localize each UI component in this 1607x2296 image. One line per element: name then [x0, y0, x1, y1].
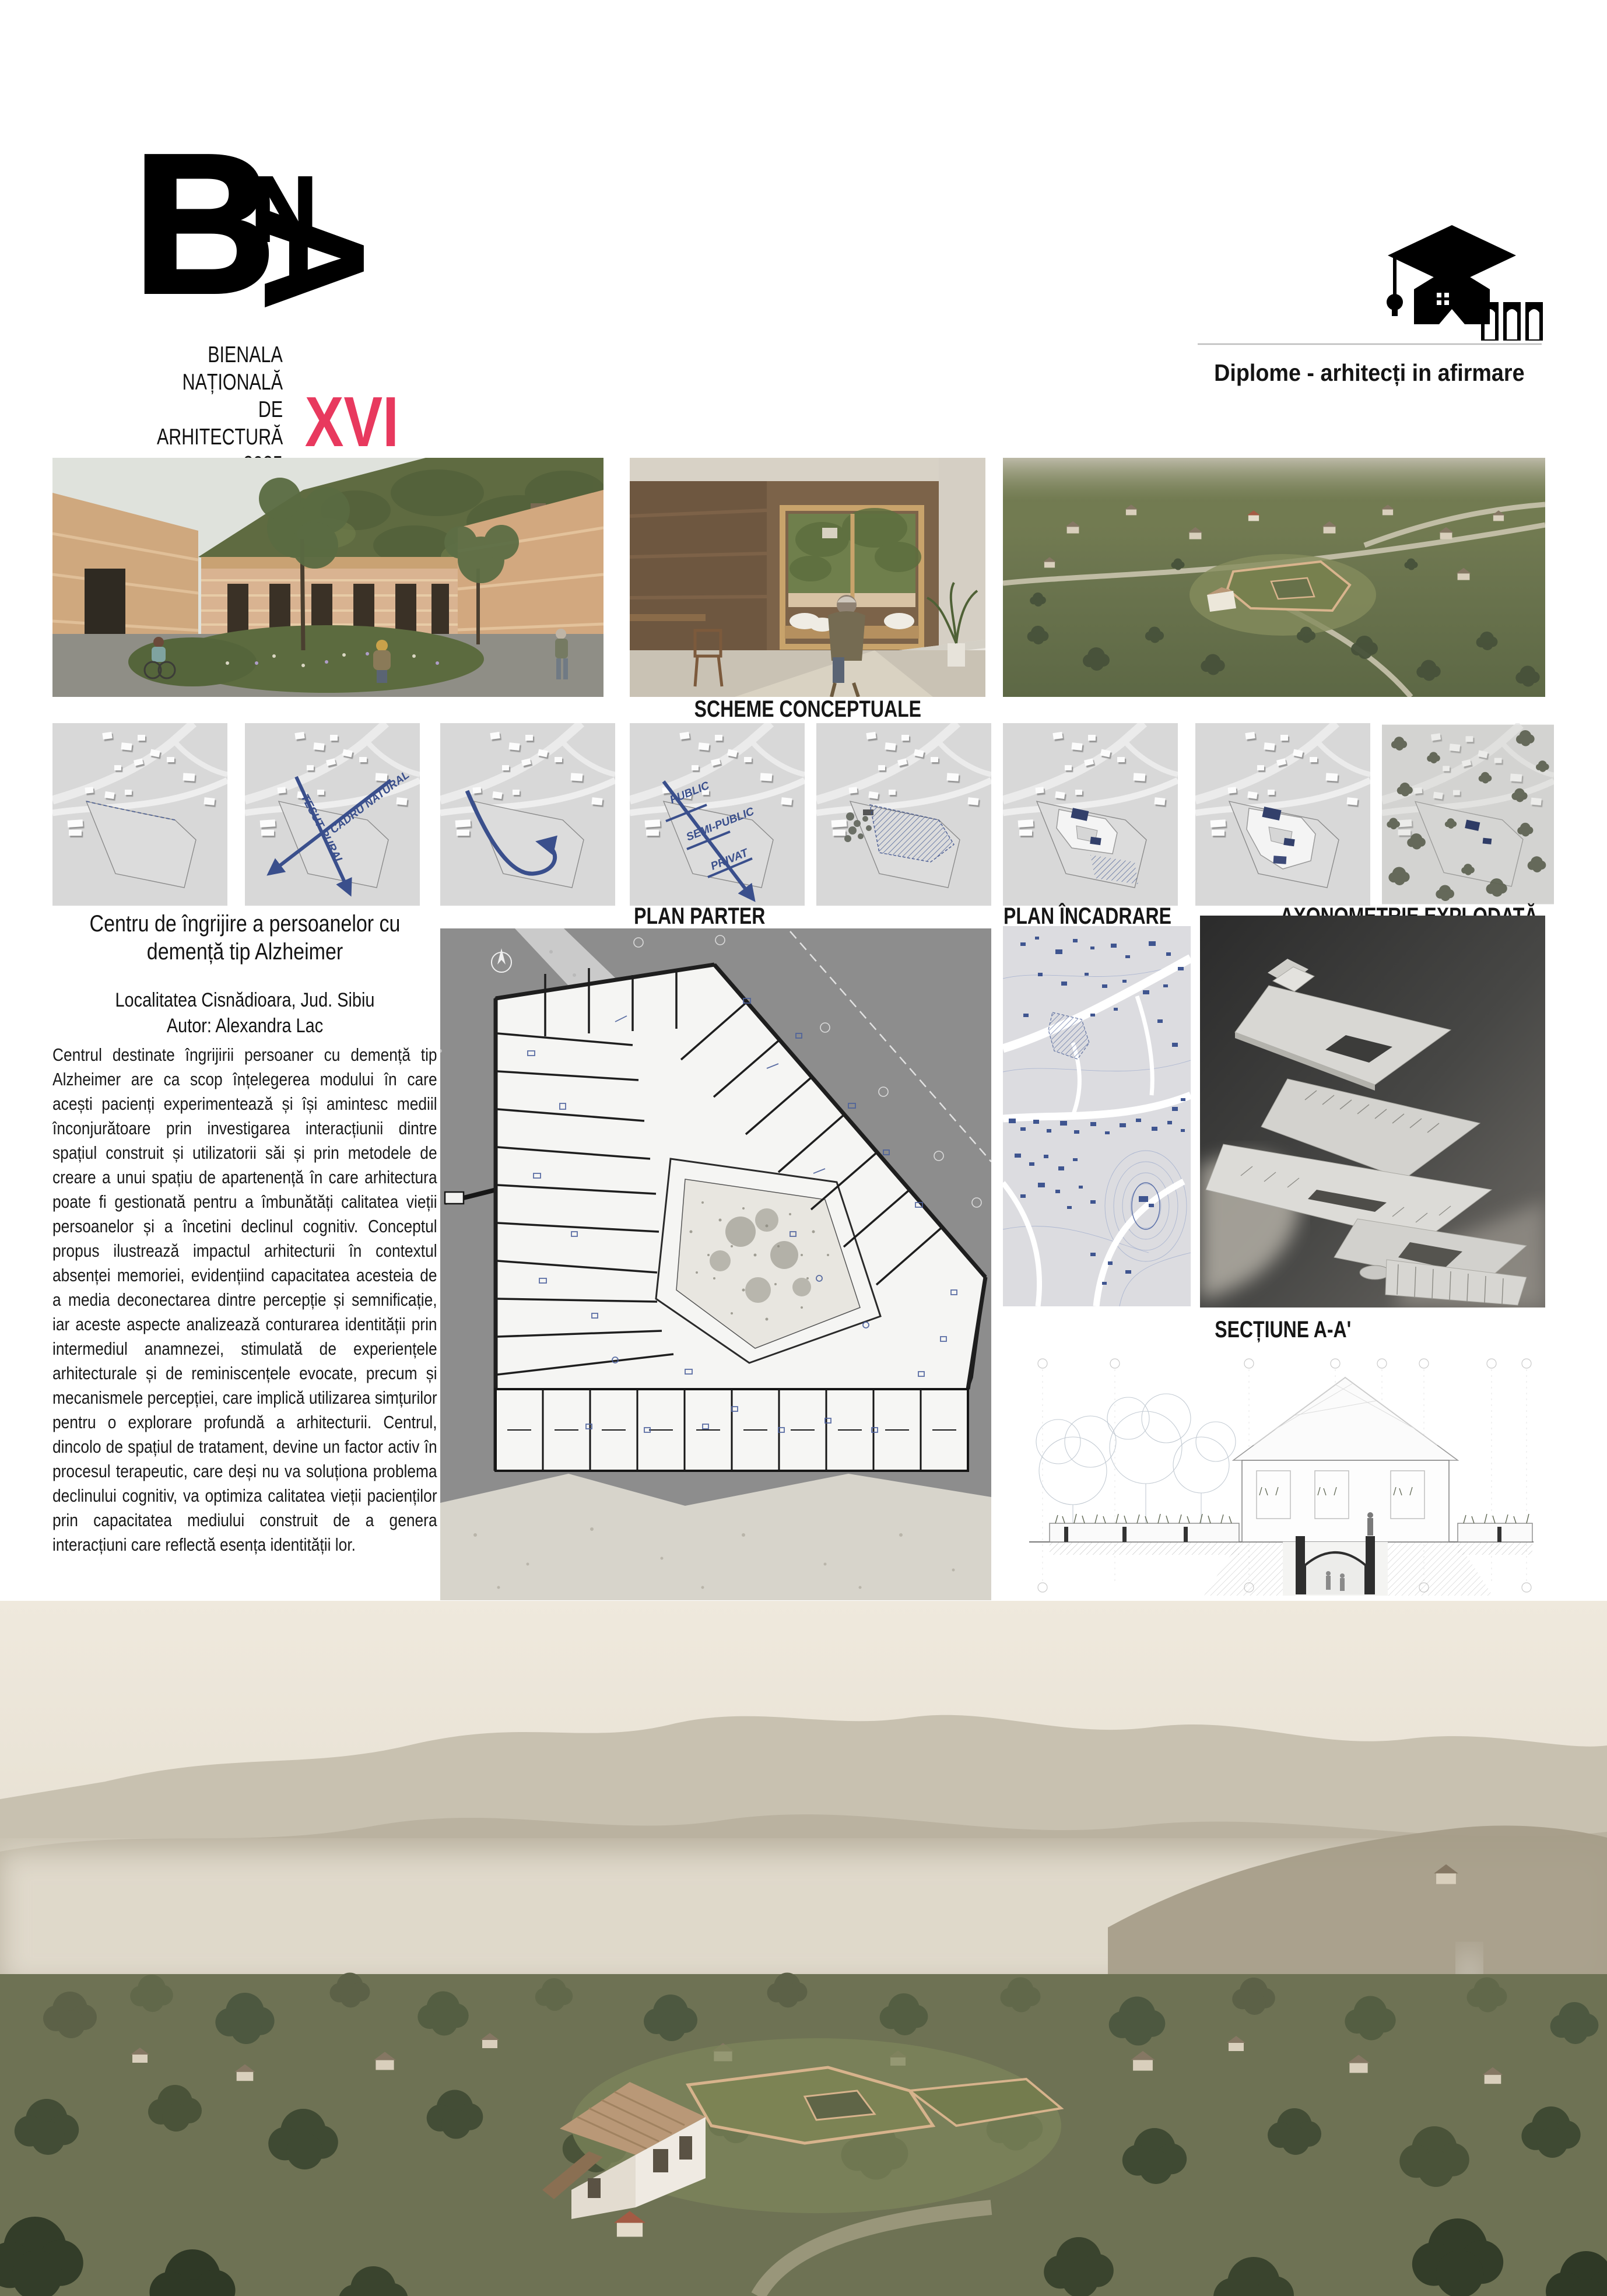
project-location: Localitatea Cisnădioara, Jud. Sibiu	[52, 989, 437, 1012]
photo-courtyard-render	[52, 458, 603, 697]
scheme-thumb-massing	[1195, 723, 1370, 906]
graduation-cap-house-icon	[1190, 220, 1549, 355]
presentation-board: B N A BIENALA NAȚIONALĂ DE ARHITECTURĂ 2…	[0, 0, 1607, 2296]
floor-plan-drawing	[440, 928, 991, 1600]
section-drawing	[1009, 1348, 1545, 1598]
exploded-axonometric-drawing	[1200, 916, 1545, 1308]
diplome-logo: Diplome - arhitecți in afirmare	[1190, 220, 1549, 395]
photo-interior-render	[630, 458, 985, 697]
site-plan-drawing	[1003, 926, 1191, 1306]
scheme-thumb-axes: TESUT RURAL CADRU NATURAL	[245, 723, 420, 906]
patient-rooms-band	[496, 1389, 968, 1471]
scheme-thumb-vegetation	[816, 723, 991, 906]
project-description: Centrul destinate îngrijirii persoaner c…	[52, 1043, 437, 1557]
scheme-thumb-circulation	[440, 723, 615, 906]
scheme-thumb-zoning: PUBLIC SEMI-PUBLIC PRIVAT	[630, 723, 805, 906]
scheme-thumb-aerial	[1382, 723, 1554, 906]
label-plan-parter: PLAN PARTER	[583, 903, 816, 930]
schemes-section-label: SCHEME CONCEPTUALE	[630, 696, 985, 723]
arches-icon	[1481, 302, 1543, 341]
project-author: Autor: Alexandra Lac	[52, 1015, 437, 1037]
bna-edition-xvi: XVI	[294, 386, 409, 457]
photo-aerial-render	[1003, 458, 1545, 697]
bna-logo: B N A BIENALA NAȚIONALĂ DE ARHITECTURĂ 2…	[0, 0, 443, 478]
scheme-thumb-massing-hatch	[1003, 723, 1178, 906]
bna-letter-a: A	[258, 208, 369, 309]
vault-section	[1283, 1536, 1388, 1596]
project-title: Centru de îngrijire a persoanelor cu dem…	[52, 910, 437, 966]
panorama-render	[0, 1601, 1607, 2296]
section-label: SECȚIUNE A-A'	[1166, 1317, 1399, 1343]
scheme-thumb-site	[52, 723, 227, 906]
diplome-label: Diplome - arhitecți in afirmare	[1190, 359, 1549, 387]
